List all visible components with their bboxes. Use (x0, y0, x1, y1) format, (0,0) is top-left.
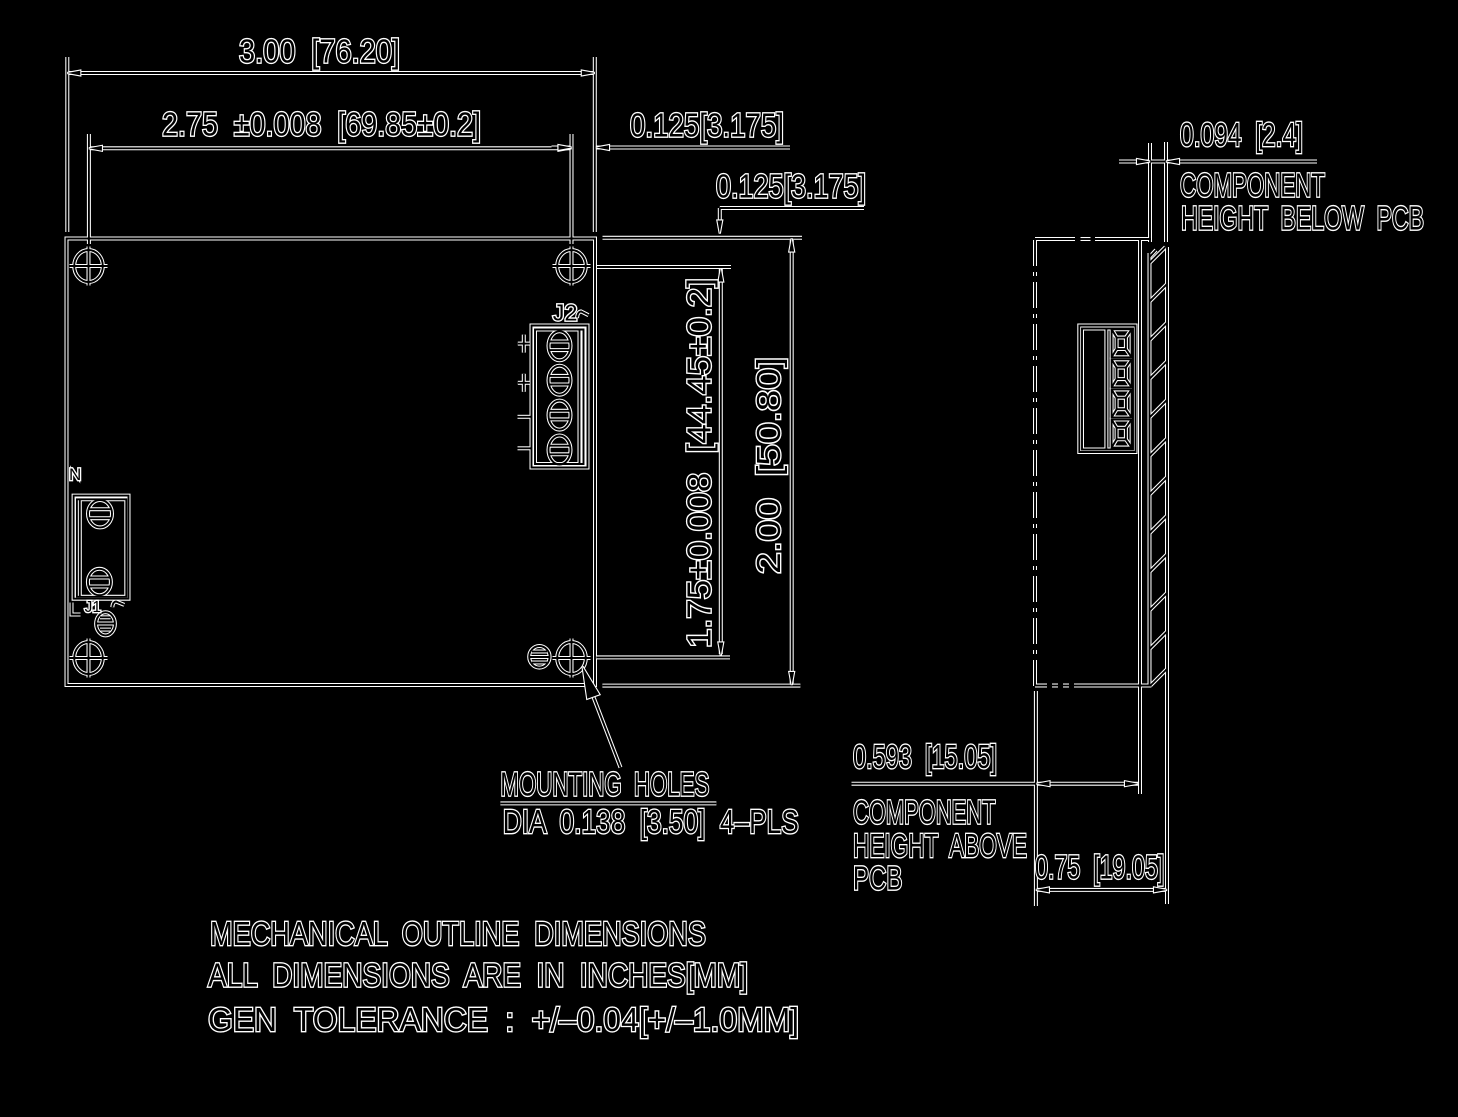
svg-text:COMPONENT: COMPONENT (1180, 168, 1325, 205)
svg-text:HEIGHT BELOW PCB: HEIGHT BELOW PCB (1181, 201, 1424, 238)
svg-text:0.75 [19.05]: 0.75 [19.05] (1035, 850, 1164, 887)
svg-text:0.125[3.175]: 0.125[3.175] (630, 108, 784, 145)
svg-text:0.125[3.175]: 0.125[3.175] (716, 169, 866, 206)
svg-text:J2: J2 (553, 300, 578, 326)
svg-text:HEIGHT ABOVE: HEIGHT ABOVE (853, 828, 1027, 865)
svg-text:MOUNTING HOLES: MOUNTING HOLES (500, 767, 709, 804)
svg-text:2.00 [50.80]: 2.00 [50.80] (751, 357, 788, 574)
svg-text:ALL DIMENSIONS ARE IN INCHES[M: ALL DIMENSIONS ARE IN INCHES[MM] (208, 958, 748, 995)
svg-text:GEN TOLERANCE : +/–0.04[+/–1.0: GEN TOLERANCE : +/–0.04[+/–1.0MM] (208, 1002, 799, 1039)
svg-text:PCB: PCB (853, 861, 902, 898)
svg-text:DIA 0.138 [3.50] 4–PLS: DIA 0.138 [3.50] 4–PLS (503, 804, 799, 841)
svg-text:COMPONENT: COMPONENT (853, 795, 996, 832)
svg-text:0.094 [2.4]: 0.094 [2.4] (1180, 117, 1303, 154)
svg-text:2.75 ±0.008 [69.85±0.2]: 2.75 ±0.008 [69.85±0.2] (162, 107, 481, 144)
svg-text:3.00 [76.20]: 3.00 [76.20] (239, 34, 400, 71)
svg-text:1.75±0.008 [44.45±0.2]: 1.75±0.008 [44.45±0.2] (682, 278, 719, 648)
svg-text:0.593 [15.05]: 0.593 [15.05] (853, 739, 997, 776)
svg-text:MECHANICAL OUTLINE DIMENSIONS: MECHANICAL OUTLINE DIMENSIONS (210, 916, 706, 953)
svg-text:J1: J1 (85, 599, 101, 616)
svg-text:N: N (69, 465, 81, 484)
